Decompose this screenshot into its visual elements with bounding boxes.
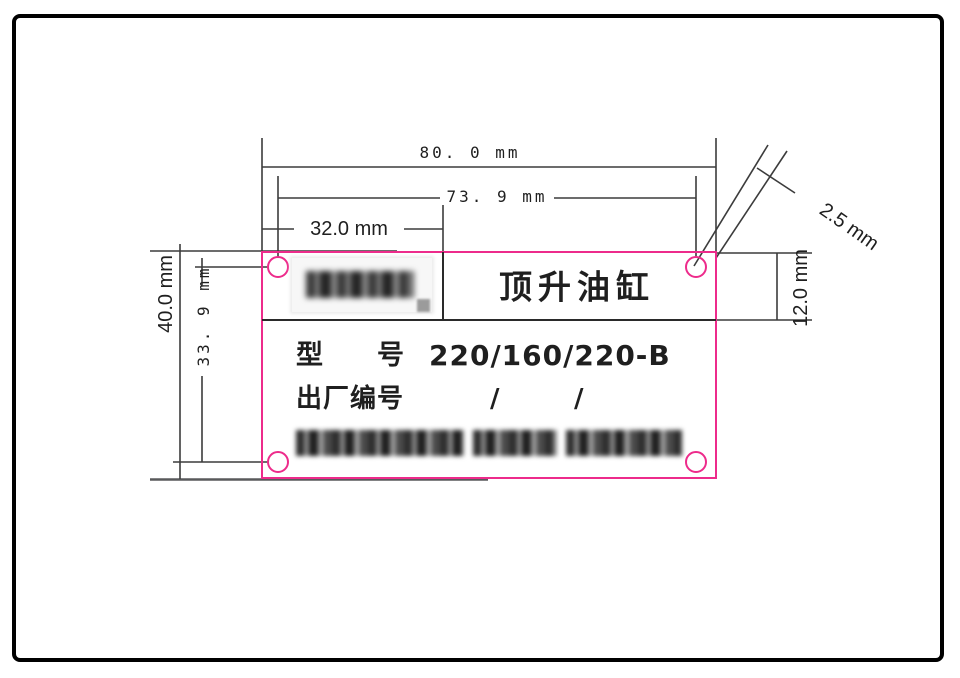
mount-hole-top-left xyxy=(268,257,288,277)
model-label-char-2: 号 xyxy=(377,342,404,369)
logo-blur-corner xyxy=(417,299,430,312)
model-value: 220/160/220-B xyxy=(429,342,671,370)
model-label-char-1: 型 xyxy=(296,342,323,369)
leader-line-hole-a xyxy=(694,145,768,266)
dim-label-total-height: 40.0 mm xyxy=(156,255,176,333)
mount-hole-bottom-right xyxy=(686,452,706,472)
dim-label-left-cell-width: 32.0 mm xyxy=(310,219,388,239)
logo-blur-bar xyxy=(306,271,414,298)
serial-slash-2: / xyxy=(574,386,584,412)
serial-slash-1: / xyxy=(490,386,500,412)
mount-hole-bottom-left xyxy=(268,452,288,472)
company-blur-segment xyxy=(296,430,464,456)
leader-tick-hole xyxy=(757,168,795,193)
plate-title: 顶升油缸 xyxy=(499,271,655,304)
logo-blurred xyxy=(292,258,432,312)
company-name-blurred xyxy=(296,430,682,456)
serial-label: 出厂编号 xyxy=(296,386,404,412)
dim-label-hole-span-height: 33. 9 mm xyxy=(196,265,212,366)
dim-label-hole-span-width: 73. 9 mm xyxy=(446,189,547,205)
dim-label-total-width: 80. 0 mm xyxy=(419,145,520,161)
dim-label-title-row-height: 12.0 mm xyxy=(791,249,811,327)
leader-line-hole-b xyxy=(716,151,787,258)
company-blur-segment xyxy=(473,430,557,456)
company-blur-segment xyxy=(566,430,682,456)
mount-hole-top-right xyxy=(686,257,706,277)
nameplate-drawing-canvas: 80. 0 mm 73. 9 mm 32.0 mm 40.0 mm 33. 9 … xyxy=(0,0,960,678)
